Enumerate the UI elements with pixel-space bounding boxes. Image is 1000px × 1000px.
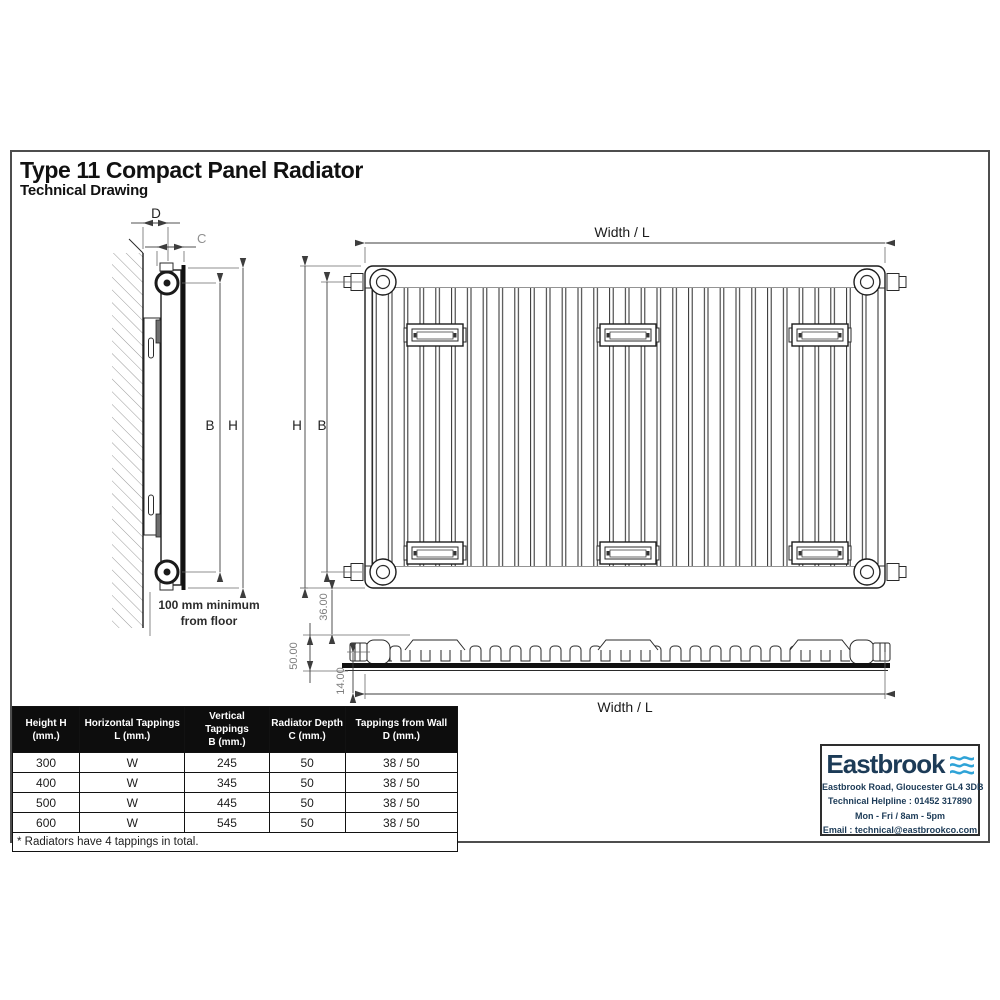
brand-helpline: Technical Helpline : 01452 317890 [822, 794, 978, 808]
col-header-tappings-from-wall: Tappings from WallD (mm.) [345, 707, 457, 753]
table-row: 500W4455038 / 50 [13, 793, 458, 813]
brand-waves-icon [950, 754, 974, 775]
plan-plug-right [850, 640, 890, 664]
bracket-top-middle [597, 324, 659, 346]
side-dim-label-h: H [228, 418, 238, 433]
side-view: D C B H 100 mm minimum from floor [112, 206, 260, 636]
col-header-radiator-depth: Radiator DepthC (mm.) [269, 707, 345, 753]
radiator-side-panel [161, 270, 181, 585]
spec-table-header-row: Height H(mm.) Horizontal TappingsL (mm.)… [13, 707, 458, 753]
brand-email: Email : technical@eastbrookco.com [822, 823, 978, 837]
table-row: 600W5455038 / 50 [13, 813, 458, 833]
bracket-top-right [789, 324, 851, 346]
col-header-vertical-tappings: Vertical TappingsB (mm.) [185, 707, 269, 753]
bracket-bottom-middle [597, 542, 659, 564]
spec-table: Height H(mm.) Horizontal TappingsL (mm.)… [12, 706, 458, 852]
boss-bottom-right [854, 559, 880, 585]
side-dim-label-b: B [205, 418, 214, 433]
brand-logo-text: Eastbrook [826, 751, 944, 777]
plug-bottom-right [887, 564, 906, 581]
plan-dim-14: 14.00 [335, 667, 347, 695]
table-footnote: * Radiators have 4 tappings in total. [13, 833, 458, 852]
bracket-top-left [404, 324, 466, 346]
wall-hatching [112, 253, 143, 628]
plan-bracket-tab-middle [598, 640, 658, 650]
plan-width-label: Width / L [597, 699, 652, 715]
front-dim-label-b: B [317, 418, 326, 433]
plan-bracket-tab-left [405, 640, 465, 650]
front-width-label: Width / L [594, 224, 649, 240]
dim-label-c: C [197, 231, 206, 246]
brand-hours: Mon - Fri / 8am - 5pm [822, 809, 978, 823]
boss-top-right [854, 269, 880, 295]
boss-bottom-left [370, 559, 396, 585]
front-view: Width / L [292, 224, 906, 588]
table-footnote-row: * Radiators have 4 tappings in total. [13, 833, 458, 852]
brand-address: Eastbrook Road, Gloucester GL4 3DB [822, 780, 978, 794]
table-row: 400W3455038 / 50 [13, 773, 458, 793]
drawing-frame: Type 11 Compact Panel Radiator Technical… [10, 150, 990, 843]
bracket-bottom-right [789, 542, 851, 564]
page: { "page": { "title": "Type 11 Compact Pa… [0, 0, 1000, 1000]
plan-dim-50: 50.00 [288, 642, 300, 670]
plug-top-right [887, 274, 906, 291]
plan-view: 36.00 50.00 14.00 Width / L [288, 588, 890, 715]
plan-bracket-tab-right [790, 640, 850, 650]
brand-box: Eastbrook Eastbrook Road, Gloucester GL4… [820, 744, 980, 836]
floor-note-line1: 100 mm minimum [158, 598, 259, 612]
front-dim-label-h: H [292, 418, 302, 433]
boss-top-left [370, 269, 396, 295]
floor-note-line2: from floor [181, 614, 238, 628]
col-header-horizontal-tappings: Horizontal TappingsL (mm.) [80, 707, 185, 753]
col-header-height: Height H(mm.) [13, 707, 80, 753]
table-row: 300W2455038 / 50 [13, 753, 458, 773]
dim-label-d: D [151, 206, 161, 221]
plan-dim-36: 36.00 [318, 593, 330, 621]
bracket-bottom-left [404, 542, 466, 564]
